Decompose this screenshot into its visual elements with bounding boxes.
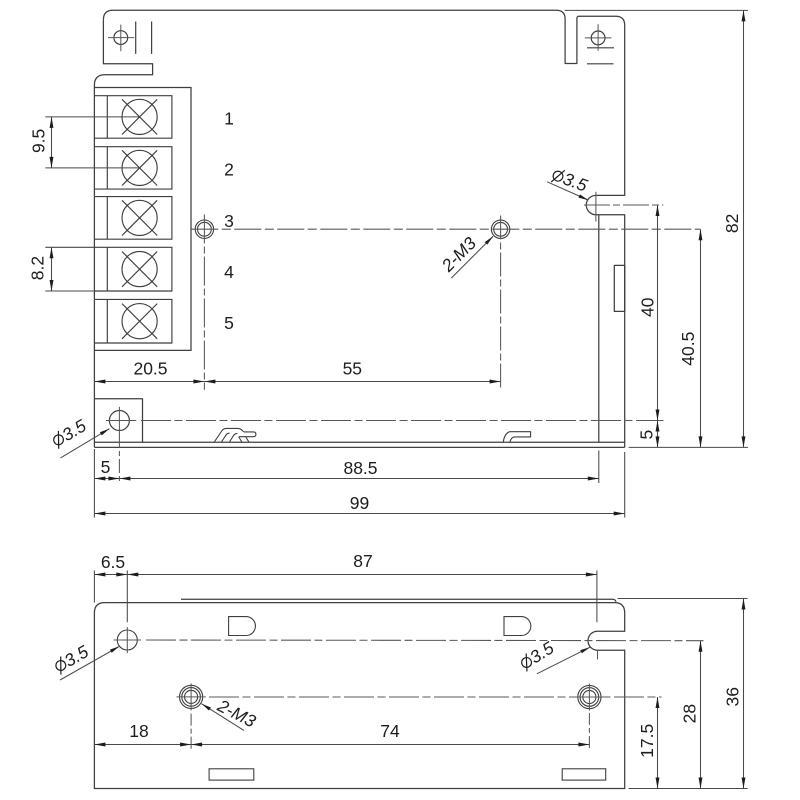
svg-text:2: 2 (224, 160, 234, 180)
svg-text:8.2: 8.2 (28, 256, 48, 280)
svg-text:36: 36 (722, 687, 742, 706)
svg-text:5: 5 (636, 430, 656, 440)
svg-text:2-M3: 2-M3 (437, 233, 480, 276)
svg-text:1: 1 (224, 109, 234, 129)
svg-text:18: 18 (129, 721, 148, 741)
svg-text:99: 99 (350, 493, 369, 513)
svg-text:5: 5 (101, 457, 111, 477)
svg-text:40: 40 (638, 297, 658, 317)
svg-text:5: 5 (224, 313, 234, 333)
svg-text:87: 87 (353, 551, 372, 571)
svg-text:28: 28 (680, 704, 700, 723)
svg-text:55: 55 (343, 359, 362, 379)
svg-text:3: 3 (224, 211, 234, 231)
svg-text:20.5: 20.5 (133, 358, 167, 378)
svg-text:17.5: 17.5 (637, 724, 657, 758)
svg-text:40.5: 40.5 (678, 332, 698, 366)
svg-text:88.5: 88.5 (343, 458, 377, 478)
svg-text:6.5: 6.5 (101, 552, 125, 572)
svg-text:74: 74 (380, 721, 400, 741)
svg-text:4: 4 (224, 262, 234, 282)
svg-text:82: 82 (722, 214, 742, 233)
svg-text:9.5: 9.5 (28, 129, 48, 153)
svg-text:3.5: 3.5 (560, 168, 590, 195)
